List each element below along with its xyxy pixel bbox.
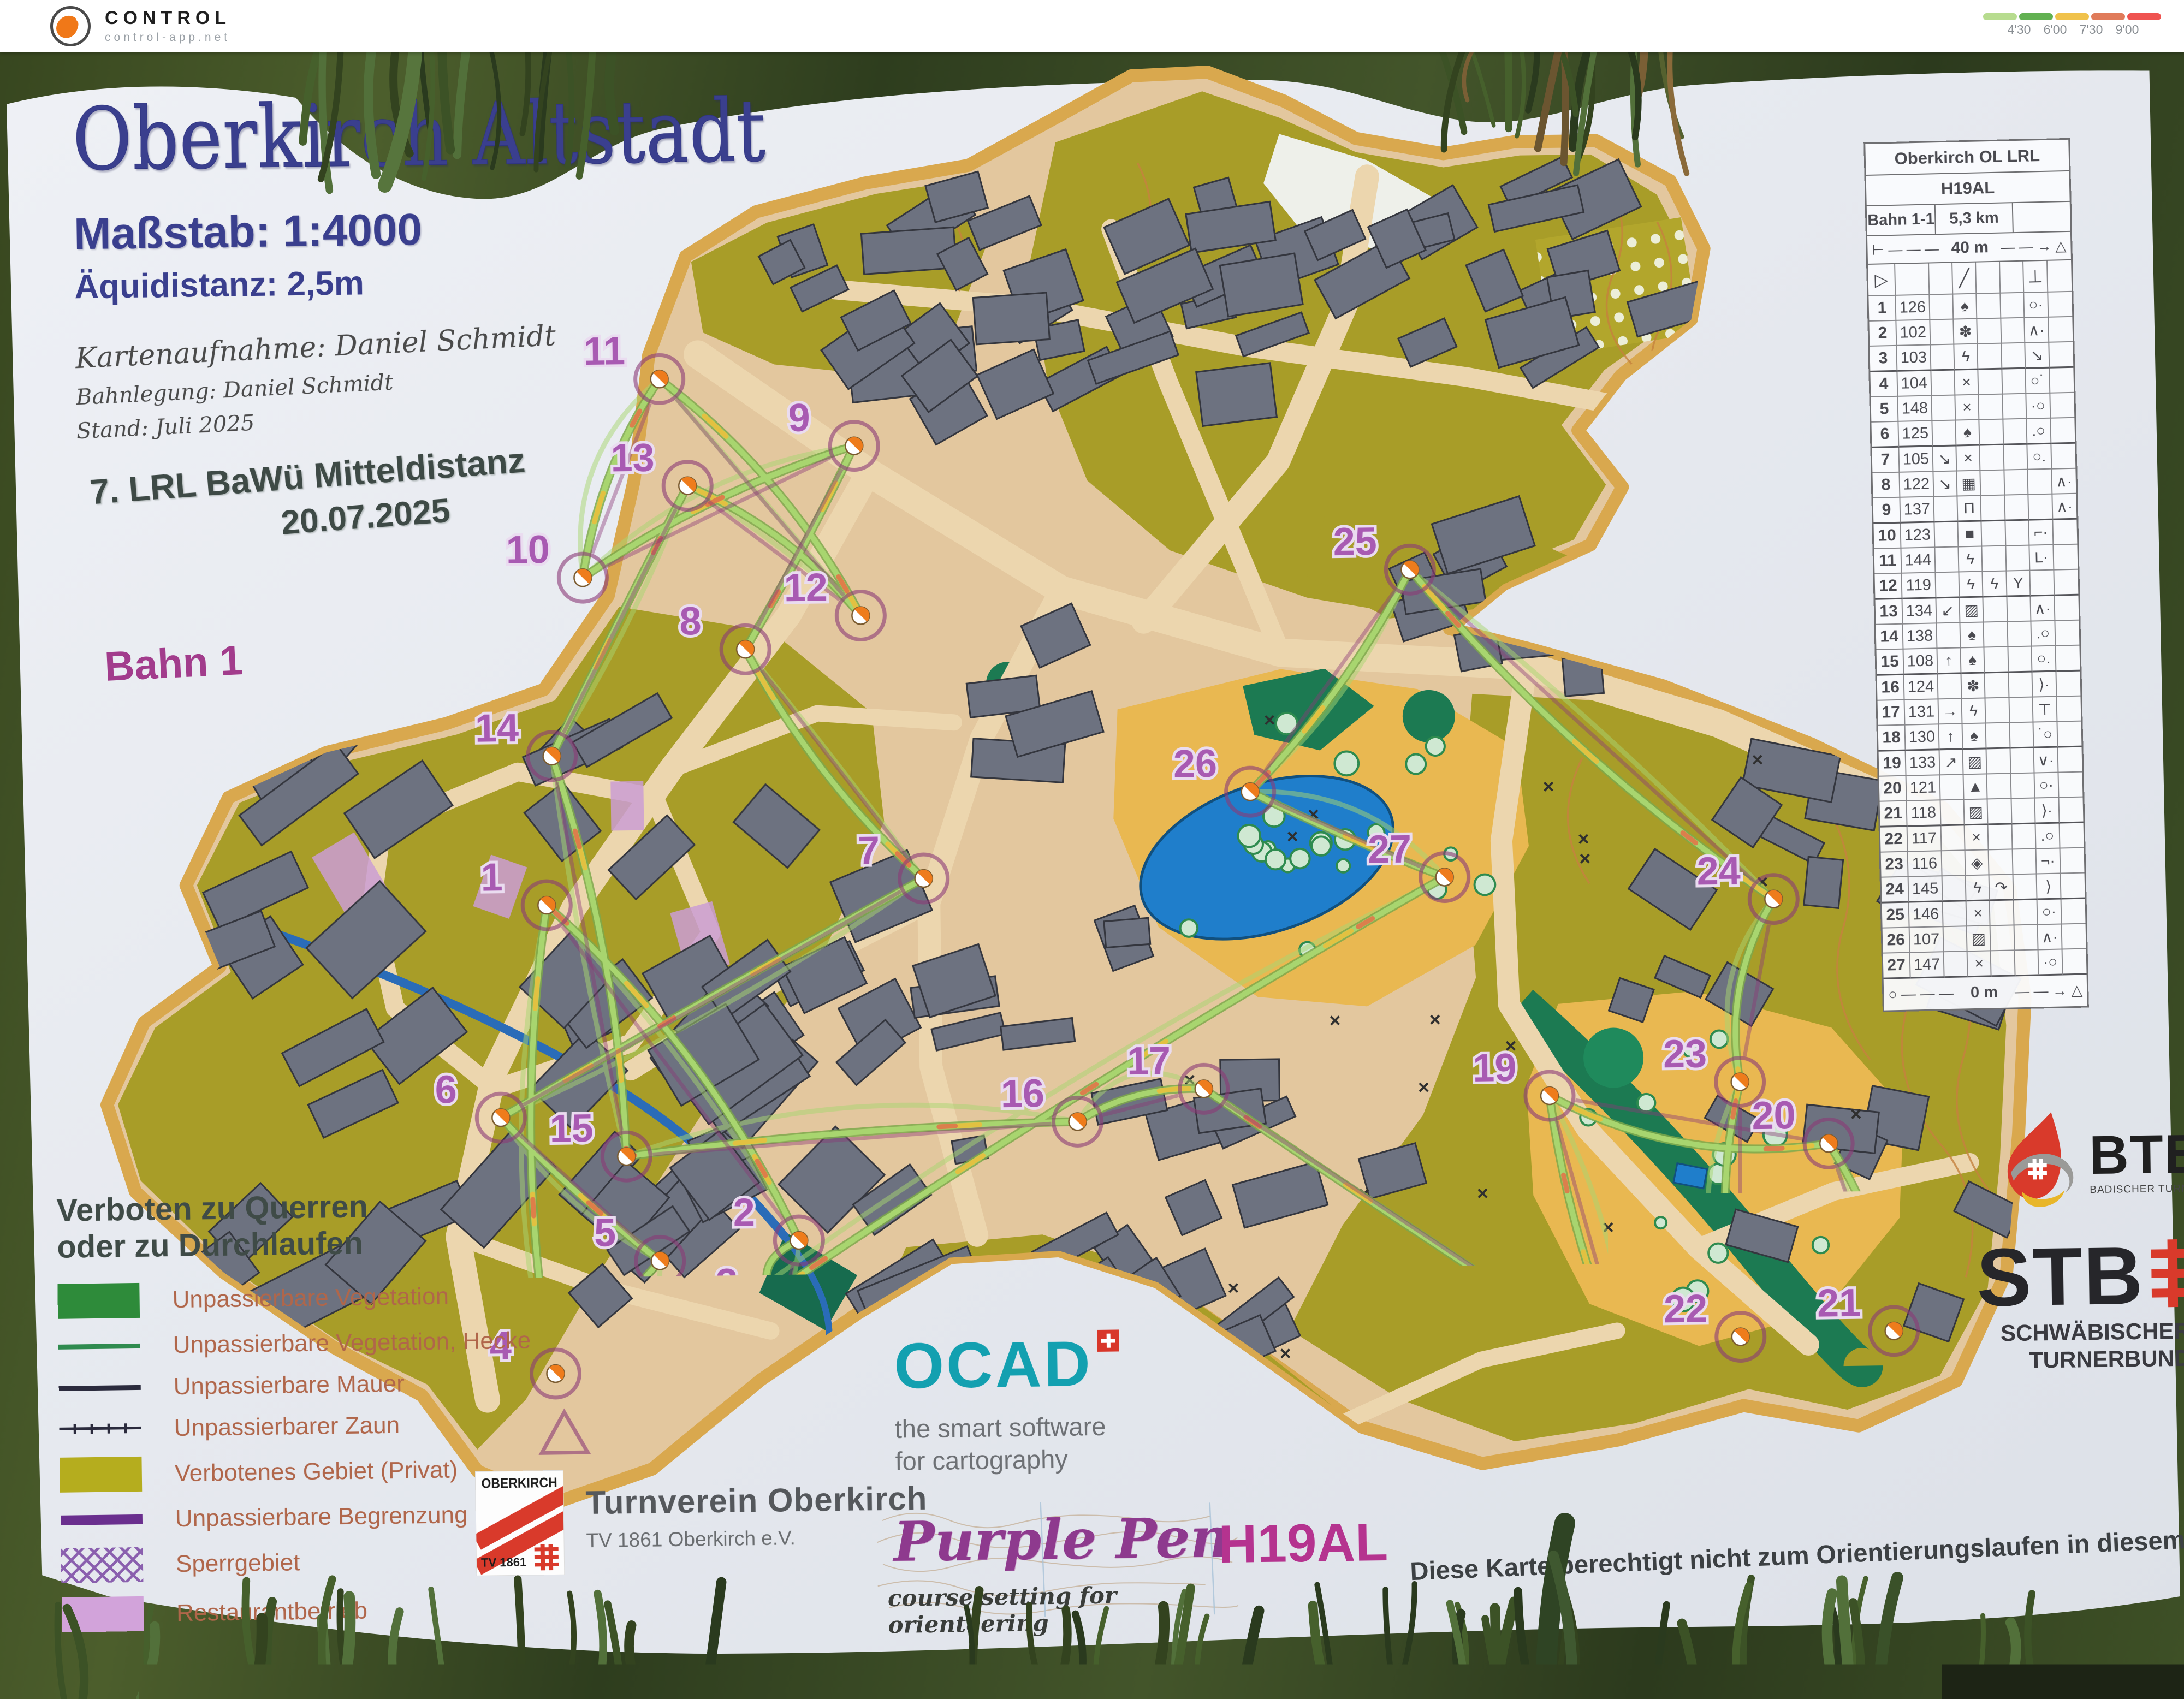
finish-distance-dashes: ○ — — — [1888, 985, 1954, 1003]
control-number-cell: 11 [1874, 549, 1902, 574]
control-code-cell: 107 [1910, 927, 1944, 953]
control-symbol-cell: ↑ [1939, 724, 1963, 750]
control-code-cell: 137 [1901, 497, 1934, 523]
control-symbol-cell: ·○ [2027, 394, 2051, 419]
control-symbol-cell: .○ [2027, 419, 2051, 445]
control-symbol-cell [1982, 521, 2006, 547]
btb-subtitle: BADISCHER TURNER-BUND [2090, 1183, 2184, 1197]
brand-domain: control-app.net [105, 32, 231, 44]
control-symbol-cell [1942, 876, 1966, 902]
control-symbol-cell: ∧· [2052, 469, 2076, 495]
control-symbol-cell: ▲ [1964, 774, 1988, 800]
control-symbol-cell [1937, 623, 1961, 649]
control-number-cell: 24 [1882, 877, 1909, 904]
legend-heading-line2: oder zu Durchlaufen [57, 1221, 685, 1266]
control-symbol-cell: ⟩· [2033, 672, 2057, 698]
control-code-cell: 119 [1902, 573, 1936, 599]
control-symbol-cell [1943, 901, 1967, 927]
course-label: Bahn 1 [103, 637, 244, 691]
control-number-cell: 19 [1879, 751, 1907, 777]
control-symbol-cell [1978, 344, 2002, 370]
btb-text: BTB BADISCHER TURNER-BUND [2089, 1129, 2184, 1197]
control-code-cell: 124 [1904, 674, 1938, 700]
control-number-cell: 16 [1877, 675, 1905, 701]
map-control-number: 27 [1367, 827, 1411, 871]
svg-text:×: × [1850, 1103, 1862, 1125]
control-code-cell: 138 [1903, 623, 1937, 649]
control-symbol-cell [2010, 748, 2034, 774]
control-symbol-cell [1932, 421, 1956, 447]
control-symbol-cell [2011, 774, 2035, 799]
control-code-cell: 133 [1906, 750, 1940, 776]
control-symbol-cell [2001, 318, 2025, 344]
control-symbol-cell: ↷ [1990, 875, 2014, 901]
control-number-cell: 27 [1883, 953, 1911, 979]
map-control-number: 26 [1173, 742, 1217, 786]
control-symbol-cell [2049, 317, 2073, 343]
badge-title: OBERKIRCH [479, 1475, 560, 1492]
control-symbol-cell: ✽ [1961, 673, 1985, 699]
legend-swatch-hatch [61, 1547, 144, 1583]
svg-text:×: × [1429, 1008, 1441, 1030]
control-code-cell: 118 [1907, 800, 1941, 827]
legend-swatch-rect [60, 1457, 142, 1493]
svg-text:×: × [1279, 1342, 1291, 1364]
control-symbol-cell [1990, 900, 2014, 926]
control-symbol-cell: ♠ [1960, 622, 1984, 648]
control-number-cell: 5 [1871, 397, 1898, 423]
btb-wordmark: BTB [2089, 1129, 2184, 1180]
app-header: CONTROL control-app.net 4'306'007'309'00 [0, 0, 2184, 52]
pace-label: 7'30 [2080, 22, 2103, 37]
map-control-number: 12 [784, 566, 828, 610]
app-screen: ×××××××××××××××××××× 1234567891011121314… [0, 0, 2184, 1699]
control-number-cell: 3 [1870, 346, 1897, 372]
course-class-code: H19AL [1218, 1511, 1388, 1575]
control-symbol-cell: ↘ [1933, 446, 1957, 472]
svg-text:×: × [1477, 1182, 1489, 1204]
pace-bar [2019, 13, 2053, 20]
control-code-cell: 104 [1898, 371, 1932, 396]
start-distance-dashes: ⊢ — — — [1872, 240, 1939, 259]
control-number-cell: 4 [1870, 372, 1898, 397]
stb-wordmark: STB [1976, 1237, 2144, 1316]
map-control-number: 1 [480, 856, 503, 900]
map-photo[interactable]: ×××××××××××××××××××× 1234567891011121314… [0, 0, 2184, 1699]
control-symbol-cell [1987, 748, 2011, 774]
control-symbol-cell [2014, 925, 2038, 951]
control-code-cell: 145 [1909, 876, 1943, 902]
control-symbol-cell: × [1968, 951, 1992, 977]
control-symbol-cell: ∧· [2052, 494, 2076, 520]
control-number-cell: 13 [1876, 599, 1903, 625]
control-symbol-cell [1985, 647, 2009, 674]
control-symbol-cell: ϟ [1983, 572, 2007, 598]
control-number-cell: 25 [1882, 903, 1910, 929]
stb-subtitle-2: TURNERBUND [1978, 1345, 2184, 1375]
control-symbol-cell [1980, 445, 2004, 471]
control-code-cell: 102 [1897, 320, 1931, 346]
pace-bar [2091, 13, 2125, 20]
control-symbol-cell: ⌐· [2029, 520, 2054, 546]
control-symbol-cell: ϟ [1966, 875, 1990, 901]
control-symbol-cell [1931, 345, 1955, 371]
control-symbol-cell [2013, 849, 2037, 875]
control-symbol-cell [2054, 545, 2078, 571]
control-symbol-cell [1986, 698, 2010, 723]
control-symbol-cell [2009, 673, 2033, 698]
control-number-cell: 22 [1880, 827, 1908, 853]
control-symbol-cell: L· [2030, 545, 2054, 571]
control-code-cell: 148 [1898, 396, 1932, 421]
control-symbol-cell [2003, 394, 2027, 420]
control-number-cell: 9 [1873, 498, 1901, 524]
control-symbol-cell [2054, 570, 2078, 596]
control-code-cell: 121 [1907, 775, 1940, 801]
legend-item: Unpassierbare Mauer [58, 1367, 687, 1402]
control-symbol-cell: ϟ [1959, 546, 1983, 572]
svg-text:×: × [1418, 1076, 1430, 1098]
sheet-start-cell [2000, 262, 2025, 294]
control-symbol-cell: ○. [2028, 444, 2052, 470]
sheet-start-cell: ╱ [1952, 263, 1977, 295]
legend-swatch-line [59, 1385, 141, 1391]
ocad-text: OCAD [893, 1327, 1093, 1404]
control-symbol-cell [2048, 292, 2072, 318]
control-symbol-cell [1977, 294, 2001, 319]
control-code-cell: 130 [1906, 724, 1939, 751]
map-control-number: 7 [857, 829, 880, 873]
svg-text:×: × [1263, 709, 1275, 731]
control-symbol-cell: ∧· [2038, 924, 2062, 950]
control-number-cell: 23 [1881, 852, 1909, 878]
map-control-number: 10 [506, 528, 550, 572]
control-number-cell: 15 [1877, 650, 1904, 676]
control-description-sheet: Oberkirch OL LRL H19AL Bahn 1-1 5,3 km ⊢… [1863, 138, 2089, 1012]
control-symbol-cell: ↘ [2026, 343, 2050, 369]
control-symbol-cell [2008, 622, 2032, 647]
control-symbol-cell: ⟩ [2037, 874, 2061, 900]
control-symbol-cell [2009, 698, 2033, 723]
map-control-number: 25 [1333, 520, 1377, 564]
map-control-number: 23 [1663, 1032, 1707, 1076]
sheet-start-distance-row: ⊢ — — — 40 m — — → △ [1867, 232, 2071, 265]
control-symbol-cell [2050, 368, 2074, 394]
control-symbol-cell [1930, 320, 1954, 346]
control-number-cell: 2 [1869, 321, 1897, 347]
control-symbol-cell: ▦ [1957, 471, 1981, 497]
control-code-cell: 126 [1896, 295, 1930, 321]
control-symbol-cell: ˙○ [2034, 722, 2058, 748]
control-symbol-cell [2050, 393, 2074, 419]
control-symbol-cell [2029, 495, 2053, 521]
control-symbol-cell [2015, 950, 2039, 976]
legend-swatch-rect [62, 1596, 144, 1632]
brand-name: CONTROL [105, 9, 231, 28]
control-symbol-cell: .○ [2036, 824, 2060, 849]
map-title-block: Oberkirch Altstadt Maßstab: 1:4000 Äquid… [72, 80, 841, 444]
control-symbol-cell [1987, 774, 2011, 799]
swiss-flag-icon [1097, 1329, 1120, 1352]
sheet-start-cell [1929, 263, 1954, 295]
control-symbol-cell [2013, 874, 2037, 900]
start-distance-value: 40 m [1951, 238, 1989, 257]
control-code-cell: 103 [1897, 345, 1931, 371]
sheet-start-cell [2048, 260, 2072, 293]
control-code-cell: 117 [1908, 826, 1942, 852]
control-symbol-cell: ○. [2032, 646, 2056, 673]
control-symbol-cell [2001, 293, 2025, 319]
sheet-control-rows: 1126♠○·2102✽∧·3103ϟ↘4104×○˙5148×·○6125♠.… [1868, 292, 2086, 979]
control-symbol-cell [2012, 824, 2036, 849]
stb-subtitle-1: SCHWÄBISCHER [1977, 1317, 2184, 1347]
control-number-cell: 18 [1878, 726, 1906, 752]
control-symbol-cell [2055, 621, 2079, 646]
control-symbol-cell [2005, 495, 2029, 521]
legend-label: Restaurantbetrieb [176, 1597, 367, 1627]
control-number-cell: 10 [1873, 524, 1901, 549]
control-symbol-cell [1979, 370, 2003, 395]
map-control-number: 18 [1550, 1319, 1594, 1363]
finish-distance-arrow: — — → △ [2015, 982, 2083, 1001]
control-symbol-cell: ↙ [1936, 598, 1960, 623]
control-symbol-cell [2057, 722, 2081, 748]
control-symbol-cell [1983, 546, 2007, 572]
control-symbol-cell [1986, 723, 2010, 749]
pace-bars [1983, 13, 2163, 20]
control-symbol-cell [2060, 848, 2084, 874]
control-symbol-cell [1981, 471, 2005, 496]
brand-text: CONTROL control-app.net [105, 9, 231, 44]
control-symbol-cell: ▨ [1963, 749, 1987, 775]
map-control-number: 20 [1752, 1094, 1796, 1138]
control-symbol-cell [2004, 470, 2028, 496]
control-symbol-cell [1935, 547, 1959, 573]
control-symbol-cell [1979, 395, 2003, 420]
app-brand[interactable]: CONTROL control-app.net [50, 6, 231, 46]
control-symbol-cell: ♠ [1961, 647, 1985, 674]
finish-distance-value: 0 m [1971, 983, 1998, 1002]
sheet-start-row: ▷╱⊥ [1868, 260, 2072, 296]
pace-label: 9'00 [2116, 22, 2139, 37]
control-symbol-cell: × [1955, 395, 1979, 421]
control-code-cell: 131 [1905, 699, 1939, 725]
control-symbol-cell [1989, 849, 2013, 875]
control-symbol-cell: ○· [2035, 773, 2059, 799]
map-scale: Maßstab: 1:4000 [73, 199, 838, 260]
control-code-cell: 134 [1903, 598, 1937, 624]
control-symbol-cell: .○ [2032, 621, 2056, 647]
control-symbol-cell: → [1938, 699, 1962, 724]
control-symbol-cell: × [1955, 370, 1979, 396]
svg-text:×: × [1542, 775, 1554, 798]
control-symbol-cell [2002, 343, 2026, 370]
legend-label: Sperrgebiet [176, 1549, 300, 1578]
control-symbol-cell: ○· [2024, 293, 2048, 318]
control-symbol-cell [2010, 723, 2034, 749]
sheet-course-length: 5,3 km [1936, 203, 2013, 234]
map-control-number: 24 [1696, 849, 1741, 893]
map-control-number: 15 [549, 1107, 594, 1151]
sheet-start-cell: ⊥ [2023, 261, 2048, 293]
control-symbol-cell [1991, 925, 2015, 951]
control-symbol-cell: ♠ [1956, 420, 1980, 447]
control-symbol-cell [2002, 369, 2026, 395]
control-symbol-cell [1934, 496, 1958, 522]
control-symbol-cell [2053, 520, 2077, 545]
stb-logo: STB SCHWÄBISCHER TURNERBUND [1976, 1235, 2184, 1375]
legend-label: Unpassierbare Vegetation [172, 1283, 449, 1314]
control-symbol-cell [1932, 396, 1956, 421]
club-logo-block: OBERKIRCH TV 1861 Turnverein Oberkirch T… [475, 1465, 928, 1576]
start-distance-arrow: — — → △ [2001, 237, 2066, 256]
control-symbol-cell: ◈ [1966, 850, 1990, 876]
pace-color-scale: 4'306'007'309'00 [1983, 13, 2163, 44]
svg-text:×: × [1227, 1276, 1239, 1299]
control-symbol-cell [1980, 420, 2004, 446]
control-number-cell: 14 [1876, 625, 1904, 650]
control-symbol-cell: ∧· [2031, 596, 2055, 622]
control-symbol-cell [2061, 874, 2085, 900]
control-number-cell: 8 [1872, 473, 1900, 498]
control-symbol-cell [1934, 522, 1959, 548]
control-number-cell: 7 [1872, 448, 1900, 473]
control-symbol-cell: ♠ [1953, 294, 1977, 320]
legend-label: Unpassierbare Vegetation, Hecke [173, 1327, 531, 1359]
control-symbol-cell [2005, 521, 2029, 546]
control-symbol-cell [1984, 597, 2008, 623]
control-symbol-cell [2058, 773, 2082, 798]
ocad-logo: OCAD the smart software for cartography [893, 1326, 1121, 1477]
control-symbol-cell [2057, 697, 2081, 722]
legend-label: Unpassierbarer Zaun [174, 1412, 400, 1442]
control-symbol-cell [2008, 647, 2032, 673]
control-symbol-cell: ○˙ [2026, 369, 2050, 394]
control-symbol-cell [2004, 445, 2028, 471]
pace-bar [2055, 13, 2089, 20]
control-symbol-cell [1978, 319, 2002, 344]
control-symbol-cell: × [1965, 825, 1989, 851]
control-code-cell: 116 [1908, 851, 1942, 877]
ocad-wordmark: OCAD [893, 1326, 1120, 1403]
control-symbol-cell [2059, 798, 2083, 824]
control-number-cell: 21 [1880, 801, 1908, 828]
control-symbol-cell: ○· [2038, 900, 2062, 925]
purple-pen-tagline: course setting for orienteering [888, 1581, 1239, 1638]
control-symbol-cell: ¬· [2037, 849, 2061, 875]
control-symbol-cell [1988, 799, 2012, 825]
sheet-start-cell [1976, 262, 2001, 294]
map-control-number: 14 [474, 706, 519, 751]
control-symbol-cell: ∧· [2025, 318, 2049, 343]
control-code-cell: 147 [1910, 952, 1944, 978]
map-control-number: 3 [716, 1261, 738, 1305]
control-number-cell: 6 [1871, 422, 1899, 448]
map-control-number: 8 [679, 599, 702, 644]
control-symbol-cell [1930, 295, 1954, 320]
control-code-cell: 123 [1901, 522, 1935, 548]
stb-hash-icon [2151, 1239, 2184, 1311]
legend-item: Unpassierbarer Zaun [59, 1408, 687, 1443]
legend-label: Verbotenes Gebiet (Privat) [174, 1457, 458, 1488]
control-logo-icon [50, 6, 91, 46]
control-symbol-cell [2062, 949, 2086, 976]
control-symbol-cell [2031, 571, 2055, 597]
control-symbol-cell: ♠ [1962, 723, 1986, 750]
control-symbol-cell: Y [2007, 571, 2031, 597]
legend-item: Unpassierbare Vegetation, Hecke [58, 1325, 686, 1361]
control-number-cell: 1 [1868, 296, 1896, 322]
control-symbol-cell: ·○ [2039, 949, 2063, 976]
sheet-title: Oberkirch OL LRL [1865, 140, 2069, 176]
control-symbol-cell [1943, 926, 1967, 952]
control-symbol-cell: ▨ [1967, 926, 1991, 952]
svg-text:×: × [1329, 1009, 1341, 1031]
control-number-cell: 20 [1879, 776, 1907, 802]
map-control-number: 21 [1817, 1281, 1861, 1326]
control-code-cell: 108 [1904, 649, 1938, 675]
control-symbol-cell: ↘ [1933, 471, 1957, 497]
legend-label: Unpassierbare Begrenzung [175, 1501, 468, 1532]
pace-labels: 4'306'007'309'00 [1983, 20, 2163, 37]
control-symbol-cell [1944, 952, 1968, 978]
ocad-tagline-1: the smart software [894, 1410, 1120, 1445]
pace-bar [2127, 13, 2161, 20]
control-symbol-cell [2055, 596, 2079, 621]
ocad-tagline-2: for cartography [895, 1442, 1121, 1477]
control-symbol-cell [2011, 798, 2035, 824]
control-symbol-cell [2062, 924, 2086, 950]
control-code-cell: 125 [1899, 421, 1933, 447]
control-symbol-cell: ∨· [2034, 748, 2058, 774]
control-symbol-cell [2058, 747, 2082, 773]
map-control-number: 17 [1127, 1039, 1171, 1083]
control-symbol-cell [2028, 470, 2052, 495]
control-symbol-cell: × [1967, 901, 1991, 926]
control-symbol-cell [2051, 444, 2075, 470]
control-symbol-cell [1991, 951, 2015, 977]
control-symbol-cell: ⟩· [2035, 798, 2060, 824]
control-code-cell: 144 [1902, 548, 1936, 573]
logo-flame-notch [76, 12, 86, 23]
control-symbol-cell [1985, 673, 2009, 698]
control-symbol-cell [1981, 496, 2005, 522]
sheet-course-info: Bahn 1-1 5,3 km [1867, 202, 2070, 236]
control-code-cell: 122 [1900, 472, 1934, 497]
control-symbol-cell: ▨ [1960, 597, 1984, 623]
pace-label: 4'30 [2008, 22, 2031, 37]
map-control-number: 2 [733, 1191, 755, 1235]
control-symbol-cell [2007, 597, 2031, 622]
badge-hash-icon [532, 1543, 561, 1572]
svg-text:×: × [1577, 828, 1589, 850]
control-symbol-cell [2049, 342, 2073, 369]
sheet-start-cell [1895, 264, 1930, 296]
control-symbol-cell [1940, 800, 1965, 826]
control-symbol-cell: ϟ [1962, 698, 1986, 724]
control-code-cell: 105 [1900, 447, 1933, 472]
legend-item: Unpassierbare Vegetation [57, 1276, 686, 1319]
control-symbol-cell [2014, 900, 2038, 925]
legend-swatch-fence [60, 1423, 141, 1435]
control-symbol-cell [1989, 824, 2013, 850]
svg-text:×: × [1579, 847, 1591, 869]
control-symbol-cell [2051, 418, 2075, 444]
oberkirch-badge-icon: OBERKIRCH TV 1861 [475, 1470, 565, 1576]
control-symbol-cell: ↗ [1939, 750, 1963, 775]
map-control-number: 6 [435, 1068, 457, 1112]
control-symbol-cell: ↑ [1937, 648, 1961, 674]
